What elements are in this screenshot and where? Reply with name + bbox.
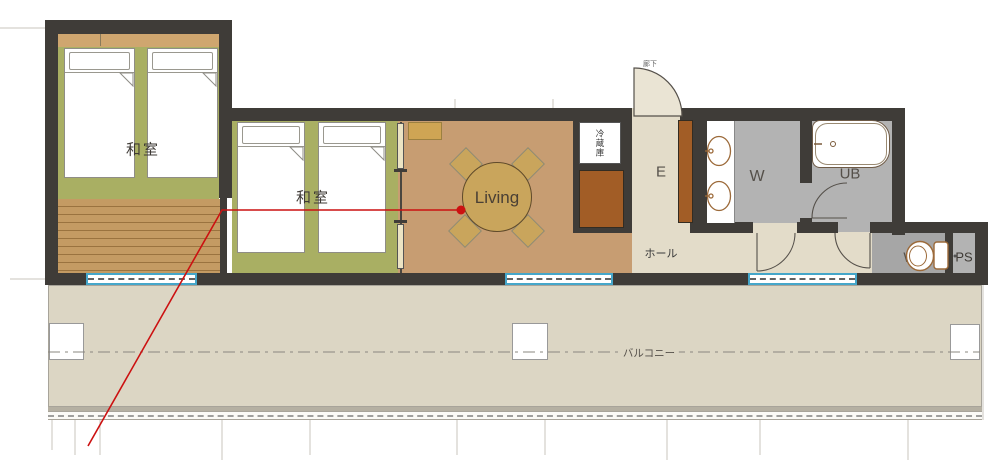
balcony-window (86, 273, 197, 285)
vanity-counter (707, 121, 735, 223)
wall-segment (797, 222, 838, 233)
bed (237, 122, 305, 253)
wall-segment (693, 112, 707, 233)
floor-plan: 冷蔵庫 和室 和室 Living E ホール W UB WC PS バルコニー … (0, 0, 1000, 471)
room-label-washitsu-2: 和室 (296, 187, 330, 208)
wall-segment (690, 222, 753, 233)
wall-segment (613, 273, 748, 285)
balcony-window (505, 273, 613, 285)
room-label-pipe-space: PS (955, 250, 972, 265)
room-label-entrance: E (656, 164, 666, 181)
wall-segment (197, 273, 505, 285)
room-label-washroom: W (749, 168, 764, 186)
sliding-door-panel (397, 224, 404, 269)
shoe-cabinet (678, 120, 693, 223)
room-label-washitsu-1: 和室 (126, 139, 160, 160)
wall-segment (870, 222, 988, 233)
wall-segment (45, 20, 232, 34)
label-corridor: 廊下 (643, 59, 657, 69)
room-label-wc: WC (903, 249, 926, 265)
room-label-balcony: バルコニー (619, 346, 679, 361)
sliding-door-panel (397, 123, 404, 169)
room-label-unit-bath: UB (840, 166, 861, 183)
bed (64, 48, 135, 178)
tv-board (408, 122, 442, 140)
wall-segment (892, 108, 905, 235)
balcony-partition-right (950, 324, 980, 360)
sliding-door-stop (394, 220, 407, 223)
bathtub (812, 120, 890, 168)
entrance-threshold (632, 108, 680, 121)
balcony-hatch-center (512, 323, 548, 360)
unit-bath-doorway (800, 183, 812, 222)
wall-segment (220, 198, 227, 275)
wall-segment (225, 108, 632, 121)
kitchen-counter (579, 170, 624, 228)
wall-segment (45, 273, 86, 285)
refrigerator-label: 冷蔵庫 (594, 129, 606, 158)
wall-segment (45, 20, 58, 285)
refrigerator: 冷蔵庫 (579, 122, 621, 164)
wall-segment (857, 273, 988, 285)
washroom-doorway (753, 222, 797, 233)
room-label-living: Living (475, 188, 519, 208)
balcony-window (748, 273, 857, 285)
washitsu-1-headboard-ledge (58, 34, 219, 47)
balcony-railing (48, 411, 982, 420)
room-label-hall: ホール (645, 245, 678, 261)
balcony-partition-left (49, 323, 84, 360)
wood-deck (58, 199, 220, 273)
sliding-door-stop (394, 169, 407, 172)
headboard-tick (100, 34, 101, 46)
wall-segment (800, 112, 812, 183)
